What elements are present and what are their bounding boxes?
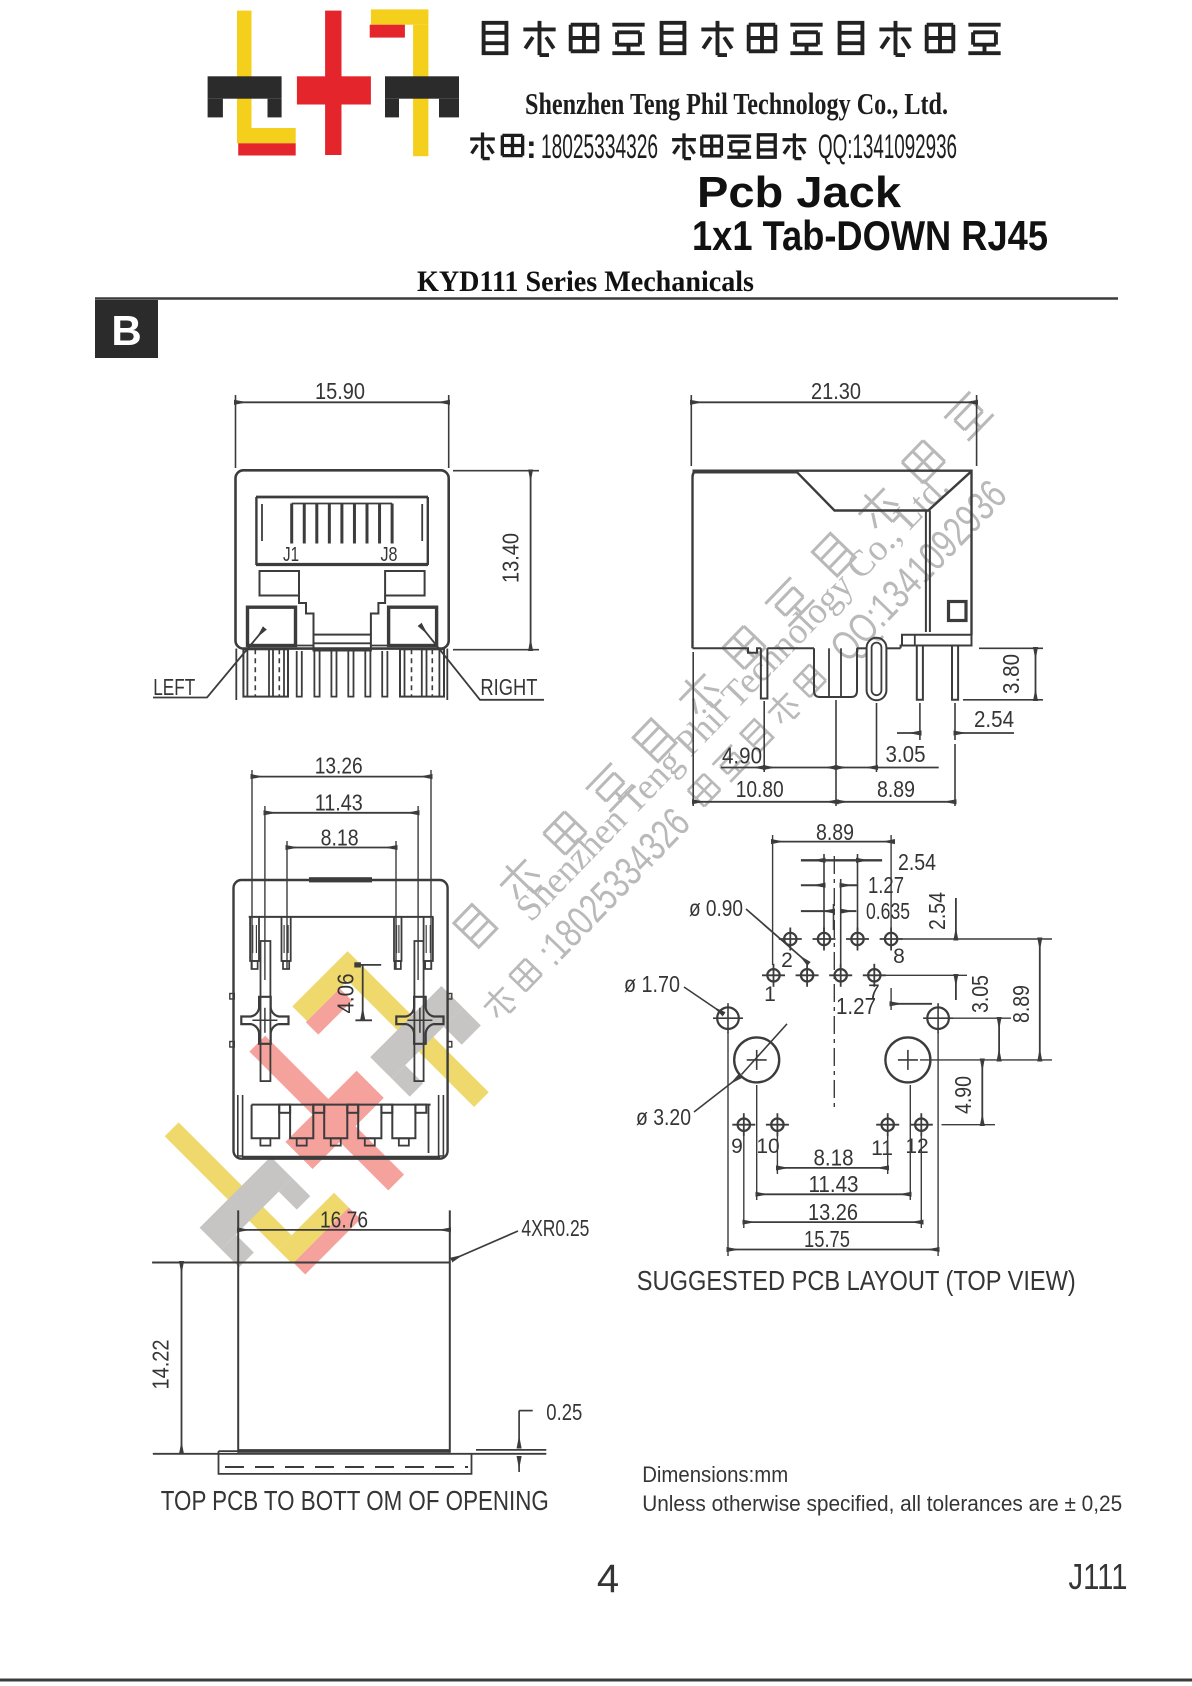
svg-text:2: 2 [781,949,793,972]
svg-text:4XR0.25: 4XR0.25 [521,1215,589,1241]
svg-text:13.26: 13.26 [315,753,363,779]
svg-text:SUGGESTED PCB LAYOUT (TOP VIEW: SUGGESTED PCB LAYOUT (TOP VIEW) [637,1265,1076,1296]
svg-text:ø 1.70: ø 1.70 [624,971,680,997]
svg-text:8.89: 8.89 [877,776,915,802]
svg-text:15.75: 15.75 [804,1226,850,1252]
svg-text:0.25: 0.25 [546,1399,582,1425]
svg-text:J111: J111 [1069,1556,1128,1597]
svg-text:ø 0.90: ø 0.90 [689,895,743,921]
svg-text:8.18: 8.18 [814,1145,854,1171]
svg-text:0.635: 0.635 [866,898,910,924]
svg-text::: : [526,129,537,165]
svg-text:1: 1 [764,983,776,1006]
svg-text:8: 8 [893,945,905,968]
svg-text:12: 12 [905,1135,928,1158]
svg-text:11.43: 11.43 [809,1171,859,1197]
svg-text:4: 4 [597,1557,619,1601]
svg-text:11: 11 [871,1137,893,1160]
svg-text:B: B [111,307,141,354]
svg-text:Shenzhen Teng Phil Technology: Shenzhen Teng Phil Technology Co., Ltd. [508,466,957,929]
svg-text:10: 10 [756,1135,779,1158]
svg-text:9: 9 [731,1135,743,1158]
svg-text:13.40: 13.40 [498,533,524,583]
svg-text:11.43: 11.43 [315,790,363,816]
svg-text:14.22: 14.22 [148,1340,174,1390]
svg-text:3.80: 3.80 [998,654,1024,694]
svg-text:13.26: 13.26 [808,1199,858,1225]
svg-text:J1: J1 [283,544,299,566]
svg-text:8.89: 8.89 [1008,985,1034,1023]
svg-text:18025334326: 18025334326 [541,128,658,166]
svg-text:LEFT: LEFT [153,674,195,700]
svg-text:Shenzhen Teng Phil Technology: Shenzhen Teng Phil Technology Co., Ltd. [525,86,948,121]
svg-text:RIGHT: RIGHT [480,674,537,700]
svg-text:15.90: 15.90 [315,378,365,404]
svg-text:QQ:1341092936: QQ:1341092936 [818,128,957,166]
svg-text:TOP PCB TO BOTT OM OF OPENING: TOP PCB TO BOTT OM OF OPENING [161,1485,549,1516]
svg-text:3.05: 3.05 [886,741,926,767]
svg-text:ø 3.20: ø 3.20 [636,1104,691,1130]
svg-text:2.54: 2.54 [924,892,950,930]
svg-text:Pcb Jack: Pcb Jack [697,168,902,217]
svg-text:Dimensions:mm: Dimensions:mm [642,1462,788,1487]
svg-text:1x1 Tab-DOWN RJ45: 1x1 Tab-DOWN RJ45 [692,212,1048,259]
svg-text:10.80: 10.80 [736,776,784,802]
svg-text:2.54: 2.54 [974,706,1014,732]
svg-text:1.27: 1.27 [836,993,876,1019]
svg-text:1.27: 1.27 [868,872,904,898]
svg-text:21.30: 21.30 [811,378,861,404]
svg-text:4.06: 4.06 [333,974,359,1014]
svg-text:J8: J8 [381,544,398,566]
svg-text:KYD111 Series Mechanicals: KYD111 Series Mechanicals [417,265,754,298]
svg-text:16.76: 16.76 [320,1207,368,1233]
svg-text:Unless otherwise specified, al: Unless otherwise specified, all toleranc… [642,1491,1122,1516]
svg-text:3.05: 3.05 [967,975,993,1013]
svg-text:4.90: 4.90 [722,743,762,769]
svg-text:4.90: 4.90 [950,1076,976,1114]
